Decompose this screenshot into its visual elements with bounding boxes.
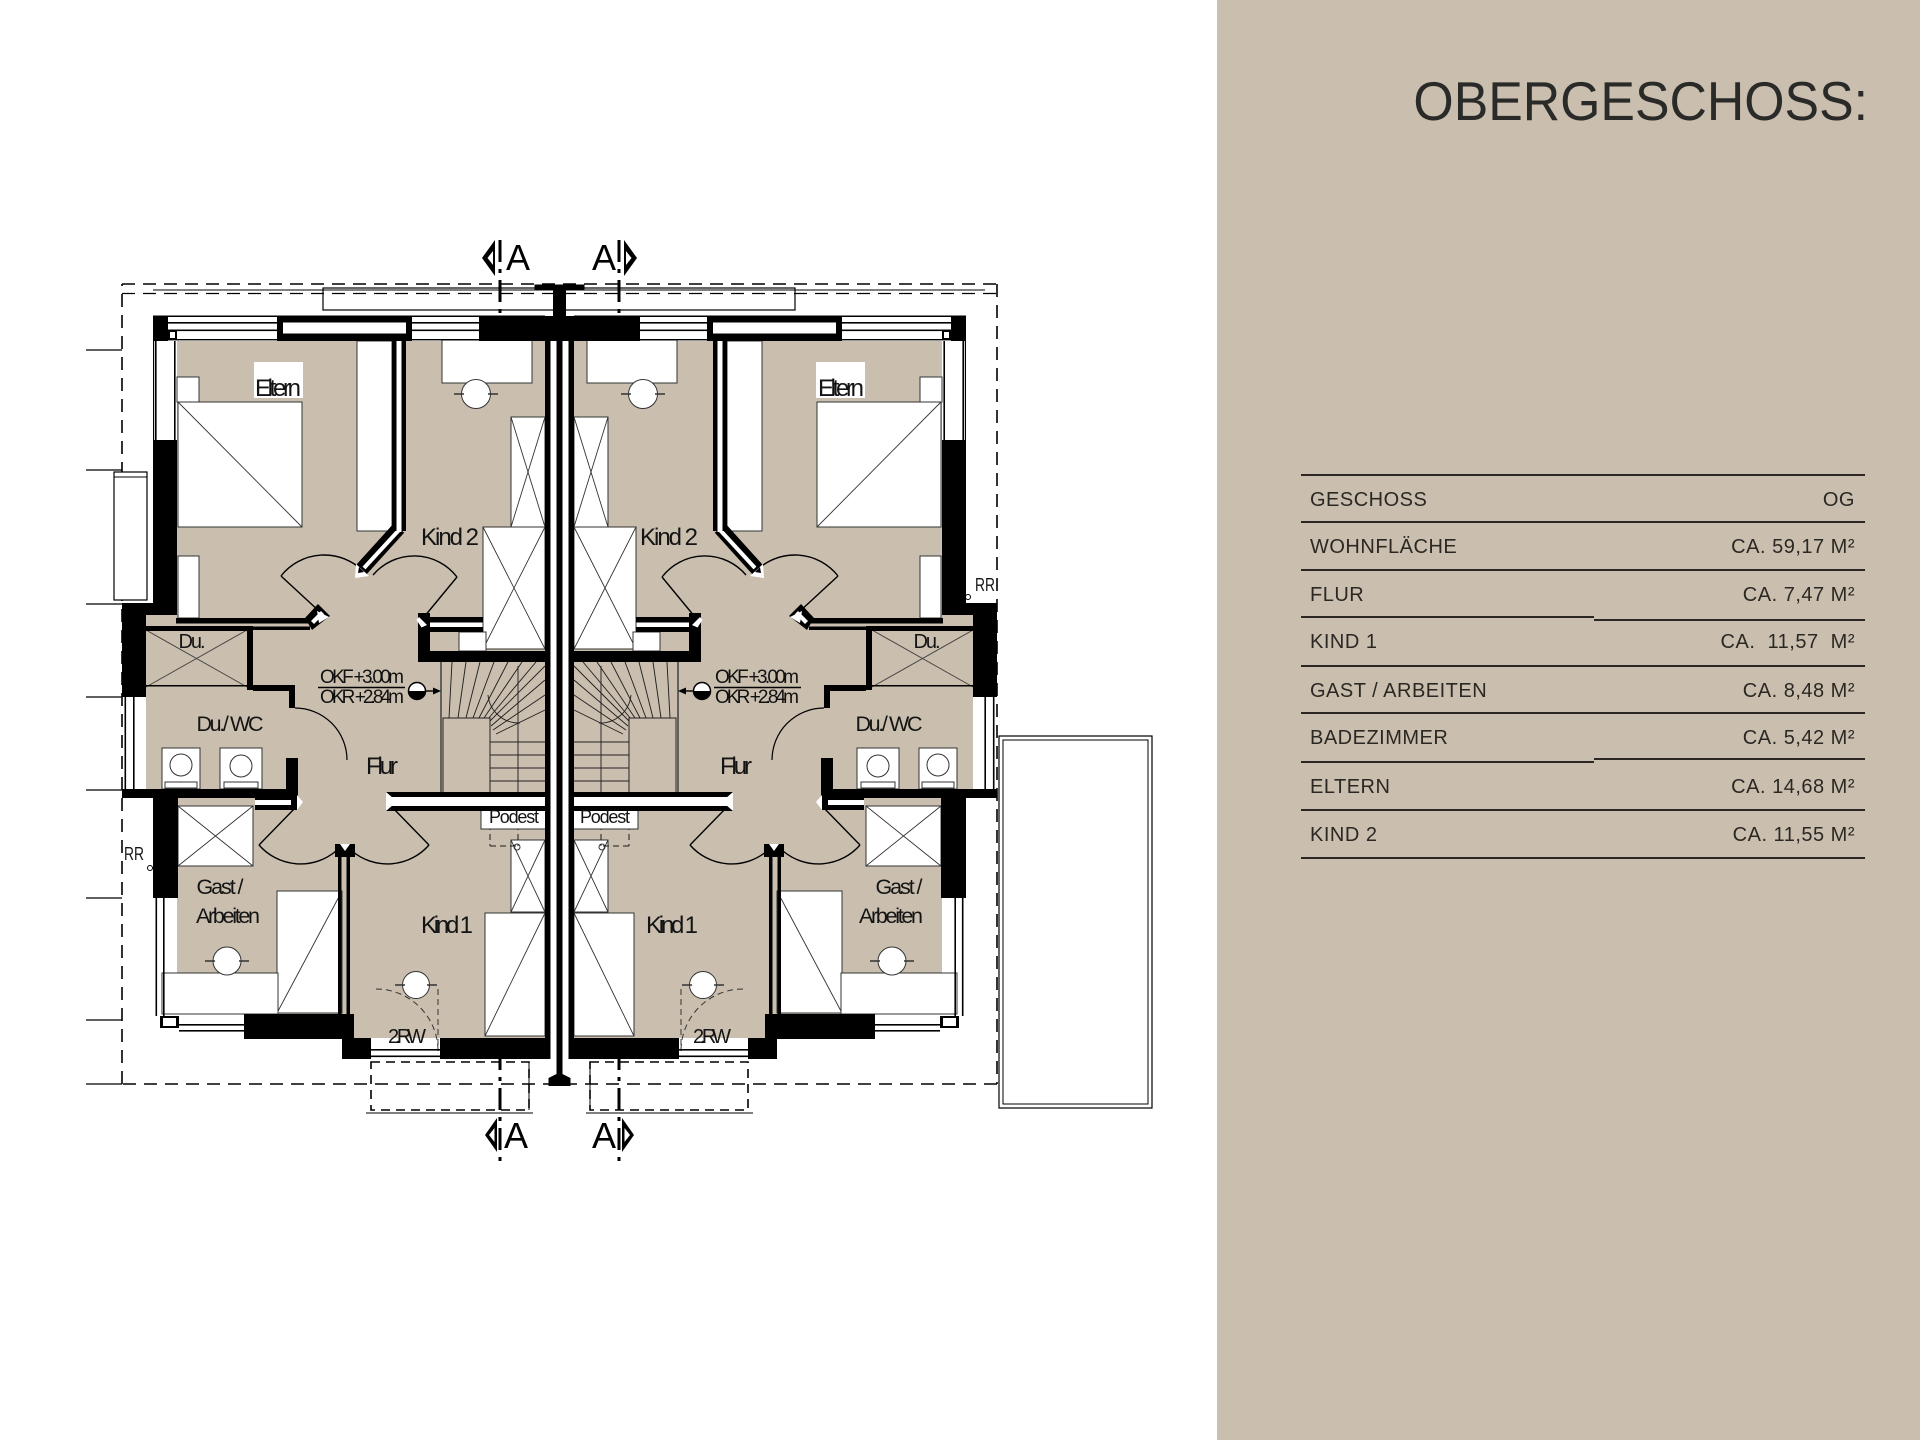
svg-text:OKR +2.84m: OKR +2.84m — [715, 687, 799, 708]
svg-text:Podest: Podest — [580, 807, 630, 827]
svg-text:Gast /: Gast / — [876, 875, 923, 899]
svg-text:Gast /: Gast / — [197, 875, 244, 899]
svg-text:Arbeiten: Arbeiten — [196, 904, 260, 928]
svg-text:Eltern: Eltern — [255, 375, 301, 402]
svg-text:OKF +3.00m: OKF +3.00m — [320, 667, 404, 688]
svg-text:RR: RR — [124, 844, 144, 864]
svg-text:Arbeiten: Arbeiten — [859, 904, 923, 928]
svg-text:RR: RR — [975, 575, 995, 595]
svg-text:2.RW: 2.RW — [693, 1026, 731, 1048]
svg-text:A: A — [504, 1115, 528, 1156]
svg-text:Du.: Du. — [179, 631, 206, 653]
svg-text:Kind 1: Kind 1 — [421, 912, 473, 939]
svg-text:A: A — [592, 1115, 616, 1156]
svg-text:Du./ WC: Du./ WC — [197, 712, 264, 736]
svg-text:Du./ WC: Du./ WC — [856, 712, 923, 736]
svg-text:Kind 2: Kind 2 — [640, 524, 698, 551]
svg-text:A: A — [592, 237, 616, 278]
svg-text:OKR +2.84m: OKR +2.84m — [320, 687, 404, 708]
svg-text:A: A — [506, 237, 530, 278]
svg-text:2.RW: 2.RW — [388, 1026, 426, 1048]
svg-text:Kind 2: Kind 2 — [421, 524, 479, 551]
svg-text:Kind 1: Kind 1 — [646, 912, 698, 939]
svg-text:Eltern: Eltern — [818, 375, 864, 402]
svg-text:Flur: Flur — [366, 753, 398, 780]
svg-text:Flur: Flur — [720, 753, 752, 780]
svg-text:OKF +3.00m: OKF +3.00m — [715, 667, 799, 688]
svg-text:Podest: Podest — [489, 807, 539, 827]
svg-text:Du.: Du. — [914, 631, 941, 653]
